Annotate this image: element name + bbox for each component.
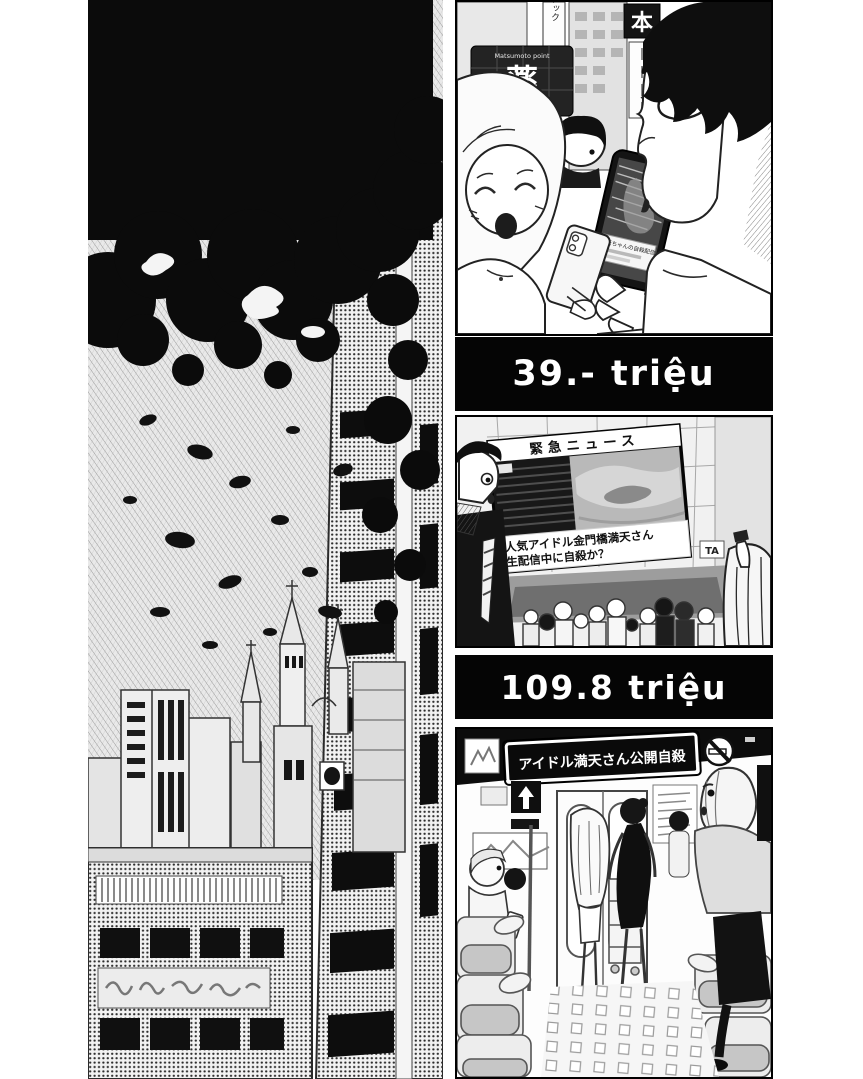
onlooker-mouth (488, 494, 495, 504)
panel-street: アック Matsumoto point 薬 ト サトシ 本 (455, 0, 773, 336)
news-screen: 緊急ニュース 人気アイドル金門橋満天さん 生配信中に自 (488, 425, 691, 573)
woman-mouth (495, 213, 517, 239)
priority-sticker (481, 787, 507, 805)
animal-signboard (320, 762, 344, 790)
strip-small-label (745, 737, 755, 742)
neighbor-dark-head (504, 868, 526, 890)
foreground-building (88, 848, 312, 1079)
panel-news: TA 緊急ニュース (455, 415, 773, 648)
news-art: TA 緊急ニュース (457, 417, 771, 646)
train-art: アイドル満天さん公開自殺 (457, 729, 771, 1077)
view-count-2: 109.8 triệu (500, 668, 727, 707)
manga-page: アック Matsumoto point 薬 ト サトシ 本 (0, 0, 863, 1079)
pharmacy-sign-top-text: Matsumoto point (494, 52, 550, 60)
street-art: アック Matsumoto point 薬 ト サトシ 本 (457, 2, 771, 334)
grab-pole (529, 825, 531, 991)
far-right-figure (757, 765, 771, 841)
bob-woman-head (669, 811, 689, 831)
blonde-woman-eye (708, 790, 715, 797)
graffiti-sign-band (98, 968, 270, 1008)
vertical-banner: アック (543, 2, 565, 50)
panel-train: アイドル満天さん公開自殺 (455, 727, 773, 1079)
office-tower (121, 690, 189, 858)
door-woman-hair (571, 808, 610, 909)
ta-sign: TA (700, 541, 724, 558)
caption-bar-1: 39.- triệu (455, 337, 773, 411)
book-sign-kanji: 本 (631, 11, 653, 36)
panel-smoke-city (88, 0, 443, 1079)
door-arrow-box (511, 781, 541, 829)
door-woman-torso (579, 905, 601, 943)
blonde-woman-mouth (701, 807, 707, 816)
ta-sign-text: TA (705, 546, 719, 557)
no-smoking-icon (705, 737, 733, 765)
screen-photo (569, 447, 685, 530)
floor (541, 981, 719, 1077)
route-map-box (465, 739, 499, 773)
view-count-1: 39.- triệu (512, 354, 715, 394)
vertical-banner-text: アック (549, 2, 559, 22)
caption-bar-2: 109.8 triệu (455, 655, 773, 719)
railing-band (96, 876, 282, 904)
smoke-city-art (88, 0, 443, 1079)
ticker-sign: アイドル満天さん公開自殺 (503, 731, 701, 785)
